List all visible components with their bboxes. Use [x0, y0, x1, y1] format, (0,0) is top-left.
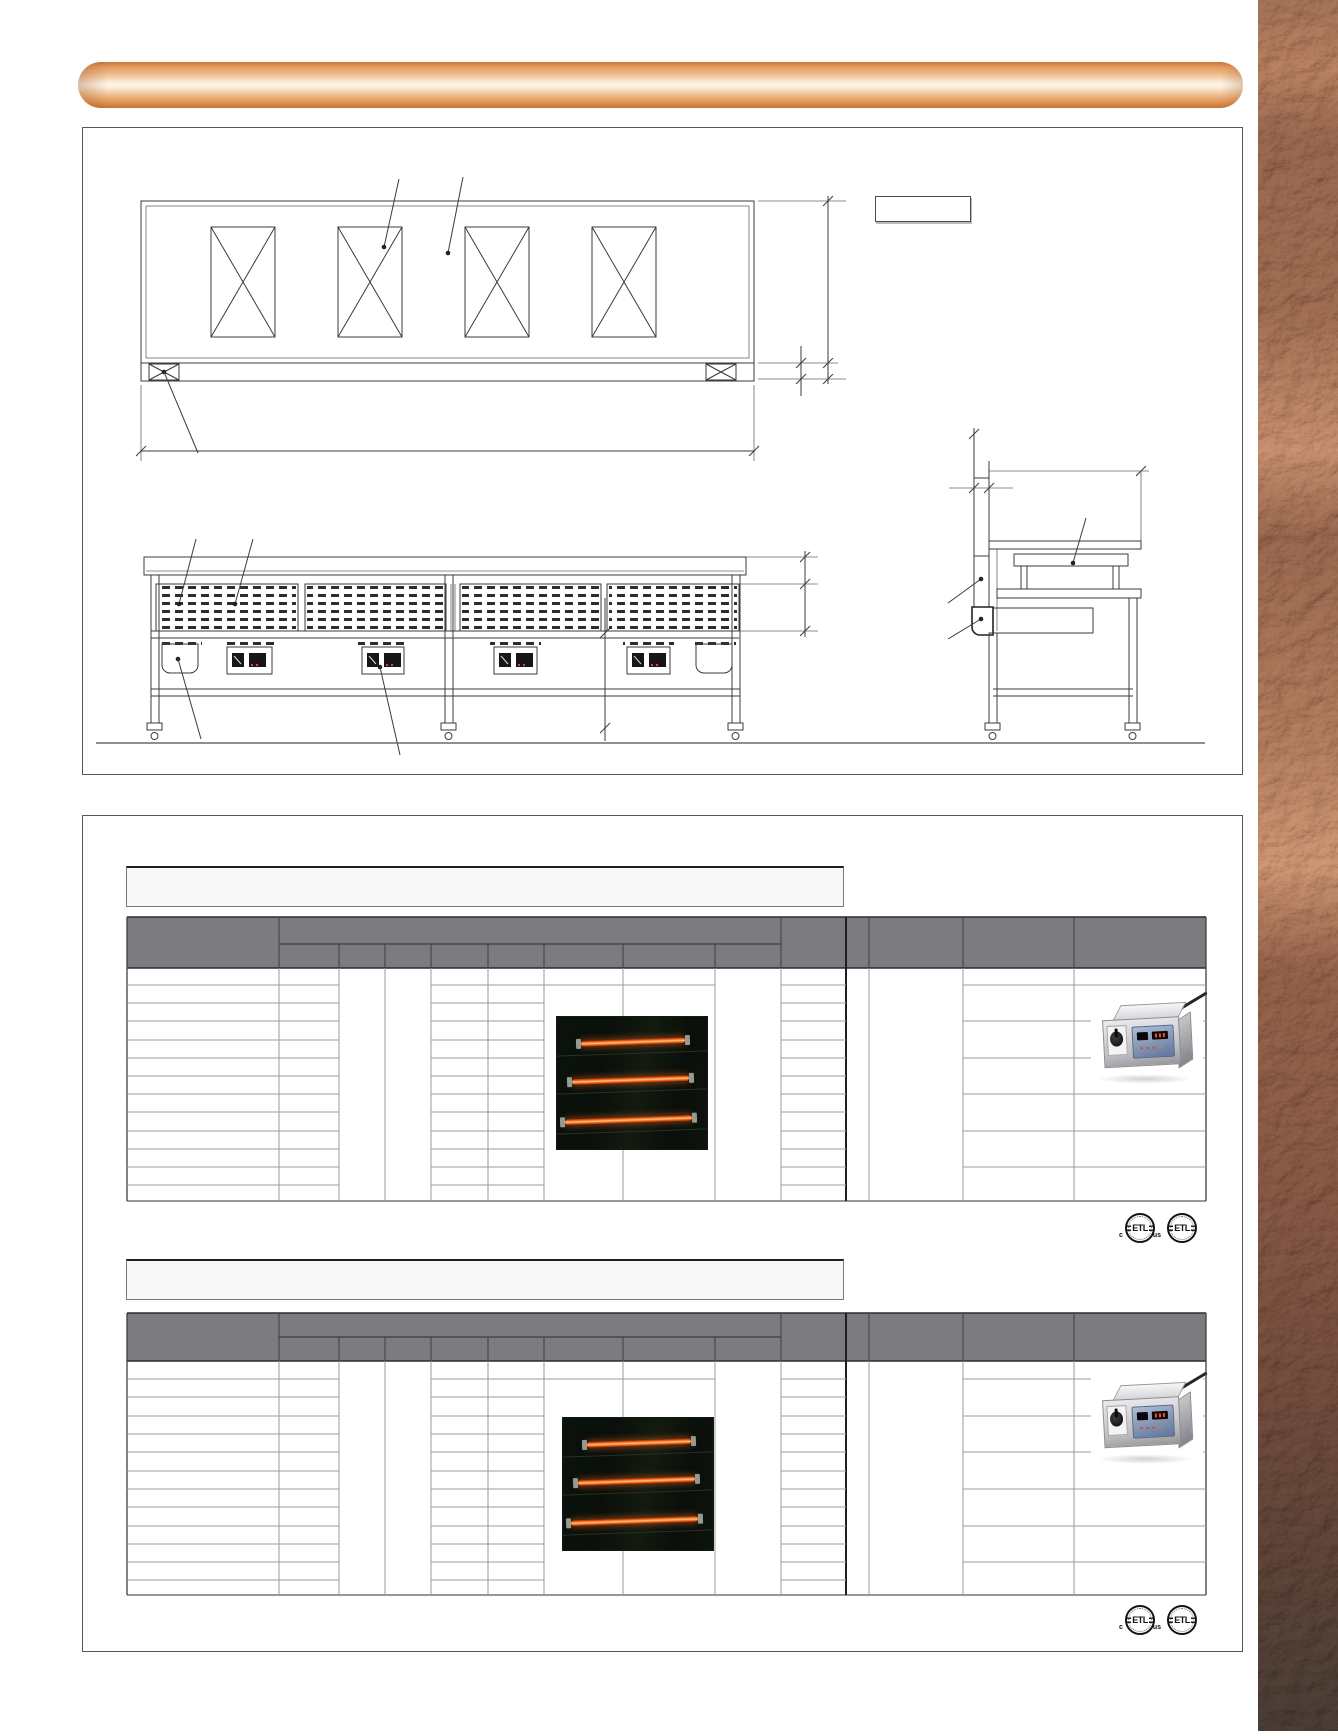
- etl-circle: ETL: [1125, 1605, 1155, 1635]
- etl-c-label: c: [1119, 1232, 1123, 1239]
- heater-panel: [607, 584, 739, 631]
- heater-tube: [571, 1516, 698, 1526]
- side-section-view: [948, 428, 1149, 740]
- controller-box: [1099, 1000, 1193, 1075]
- copper-texture: [1258, 0, 1338, 1731]
- panel-buttons: [1141, 1427, 1143, 1429]
- controller-photo: [1091, 1366, 1203, 1466]
- heater-panel: [305, 584, 446, 631]
- shadow: [1097, 1454, 1193, 1464]
- heater-panel: [460, 584, 601, 631]
- drawing-label-box: [875, 196, 971, 222]
- table2-title-bar: [126, 1259, 844, 1300]
- heater-tube: [587, 1438, 691, 1448]
- etl-listed-icon: c ETL us: [1123, 1212, 1153, 1242]
- element-box-1: [211, 227, 275, 337]
- controller-box: [362, 647, 404, 674]
- etl-us-label: us: [1153, 1232, 1161, 1239]
- catalog-page: { "banner": { "text": "" }, "drawing_pan…: [0, 0, 1338, 1731]
- control-panel: [1131, 1405, 1175, 1439]
- display-left: [1137, 1032, 1148, 1041]
- display-left: [1137, 1412, 1148, 1421]
- control-panel: [1131, 1025, 1175, 1059]
- etl-letters: ETL: [1131, 1224, 1149, 1233]
- etl-circle: ETL: [1167, 1605, 1197, 1635]
- display-right: [1152, 1411, 1168, 1420]
- front-elevation-view: [96, 539, 1205, 755]
- heater-elements-photo: [556, 1016, 708, 1150]
- technical-drawing: [83, 128, 1240, 772]
- spec-panel: c ETL us ETL c ETL us ETL: [82, 815, 1243, 1652]
- etl-sanitation-icon: ETL: [1165, 1212, 1195, 1242]
- heater-panel: [156, 584, 298, 631]
- copper-texture-strip: [1258, 0, 1338, 1731]
- table1-title-bar: [126, 866, 844, 907]
- element-box-4: [592, 227, 656, 337]
- etl-letters: ETL: [1173, 1616, 1191, 1625]
- heater-tube: [565, 1115, 692, 1125]
- copper-banner: [78, 62, 1243, 108]
- heater-elements-photo: [562, 1417, 714, 1551]
- etl-listed-icon: c ETL us: [1123, 1604, 1153, 1634]
- etl-sanitation-icon: ETL: [1165, 1604, 1195, 1634]
- etl-circle: ETL: [1125, 1213, 1155, 1243]
- drawing-panel: [82, 127, 1243, 775]
- rail-box-right: [706, 364, 736, 380]
- display-right: [1152, 1031, 1168, 1040]
- controller-box: [227, 647, 272, 674]
- etl-letters: ETL: [1173, 1224, 1191, 1233]
- controller-box: [627, 647, 670, 674]
- heater-tube: [572, 1075, 689, 1085]
- controller-box: [1099, 1380, 1193, 1455]
- etl-marks-row: c ETL us ETL: [1123, 1604, 1195, 1634]
- bin-right: [696, 644, 732, 673]
- element-box-2: [338, 227, 402, 337]
- plan-view: [136, 177, 846, 461]
- etl-marks-row: c ETL us ETL: [1123, 1212, 1195, 1242]
- etl-us-label: us: [1153, 1624, 1161, 1631]
- controller-box: [494, 647, 537, 674]
- heater-tube: [578, 1476, 695, 1486]
- element-box-3: [465, 227, 529, 337]
- etl-c-label: c: [1119, 1624, 1123, 1631]
- shadow: [1097, 1074, 1193, 1084]
- controller-photo: [1091, 986, 1203, 1086]
- heater-tube: [581, 1037, 685, 1047]
- panel-buttons: [1141, 1047, 1143, 1049]
- table-header-band: [127, 917, 1206, 968]
- etl-circle: ETL: [1167, 1213, 1197, 1243]
- etl-letters: ETL: [1131, 1616, 1149, 1625]
